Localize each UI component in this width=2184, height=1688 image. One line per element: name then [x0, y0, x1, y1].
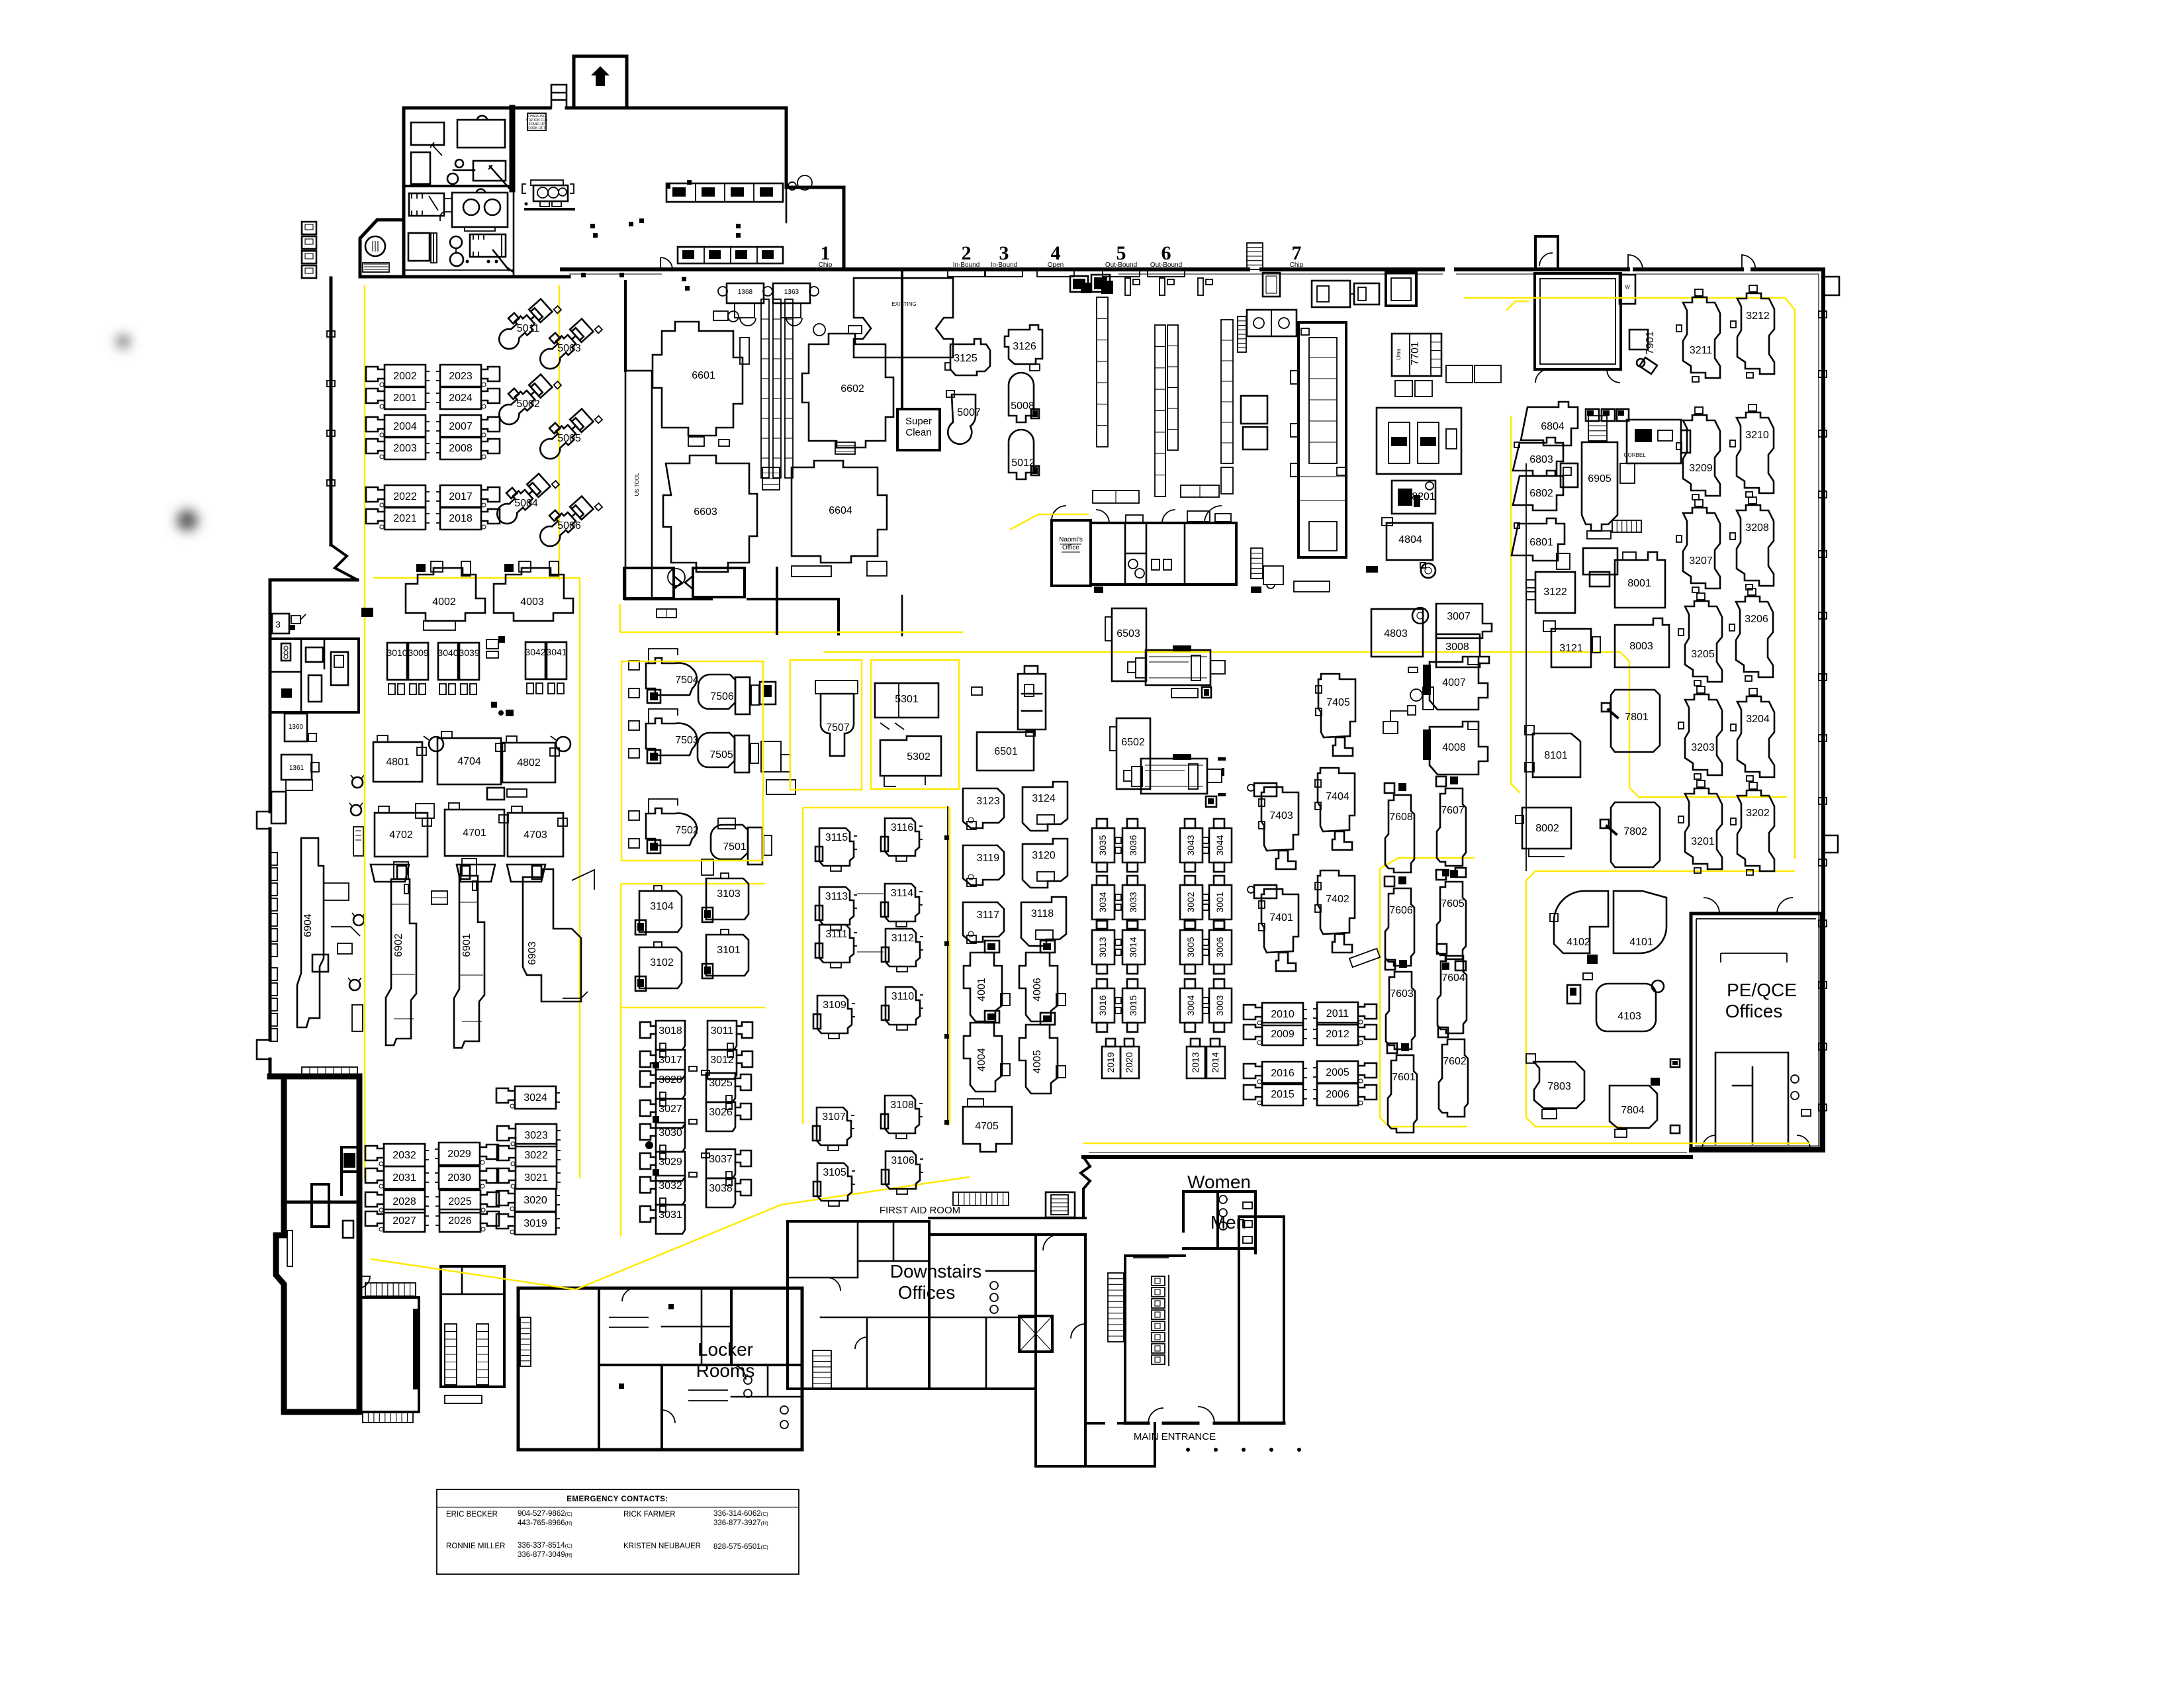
svg-text:W: W	[1625, 284, 1630, 290]
svg-text:Women: Women	[1187, 1172, 1251, 1192]
svg-text:5007: 5007	[957, 407, 981, 418]
svg-text:2016: 2016	[1271, 1068, 1295, 1079]
svg-text:3022: 3022	[524, 1150, 548, 1161]
svg-text:2006: 2006	[1326, 1089, 1349, 1100]
svg-text:3027: 3027	[659, 1103, 682, 1115]
svg-text:336-877-3927(H): 336-877-3927(H)	[713, 1519, 768, 1527]
svg-text:3012: 3012	[710, 1055, 734, 1066]
svg-text:3117: 3117	[977, 910, 1000, 921]
svg-text:7402: 7402	[1326, 894, 1349, 905]
svg-text:3204: 3204	[1746, 714, 1770, 725]
svg-text:KRISTEN NEUBAUER: KRISTEN NEUBAUER	[623, 1542, 701, 1550]
svg-text:2001: 2001	[393, 393, 417, 404]
svg-text:Out-Bound: Out-Bound	[1105, 261, 1137, 269]
svg-text:5011: 5011	[517, 323, 540, 334]
svg-text:3206: 3206	[1745, 614, 1768, 625]
svg-text:2027: 2027	[392, 1215, 416, 1227]
svg-text:3115: 3115	[825, 832, 848, 843]
svg-text:5012: 5012	[1011, 457, 1035, 469]
svg-text:3043: 3043	[1185, 835, 1196, 855]
svg-text:5301: 5301	[895, 694, 919, 705]
svg-text:3001: 3001	[1214, 892, 1225, 912]
svg-text:4704: 4704	[457, 756, 481, 767]
svg-text:5005: 5005	[557, 433, 581, 444]
svg-text:3205: 3205	[1691, 649, 1715, 660]
svg-text:7607: 7607	[1441, 805, 1465, 816]
svg-text:PE/QCE: PE/QCE	[1727, 980, 1797, 1000]
svg-text:4003: 4003	[520, 596, 544, 608]
svg-text:6803: 6803	[1529, 454, 1553, 465]
svg-text:3125: 3125	[954, 353, 978, 364]
svg-text:1368: 1368	[738, 289, 753, 296]
svg-text:3123: 3123	[976, 796, 1000, 807]
svg-text:3037: 3037	[709, 1154, 733, 1165]
svg-text:3035: 3035	[1097, 835, 1108, 855]
svg-text:3107: 3107	[822, 1111, 846, 1123]
svg-text:6502: 6502	[1121, 737, 1145, 748]
svg-text:3103: 3103	[717, 888, 741, 900]
svg-text:2013: 2013	[1190, 1052, 1201, 1072]
svg-text:7803: 7803	[1547, 1081, 1571, 1092]
svg-text:7401: 7401	[1269, 912, 1293, 923]
svg-text:3116: 3116	[891, 822, 914, 833]
svg-text:8003: 8003	[1629, 641, 1653, 652]
svg-text:6902: 6902	[393, 933, 404, 957]
svg-text:3030: 3030	[659, 1127, 682, 1139]
svg-text:2004: 2004	[393, 421, 417, 432]
svg-text:MAIN ENTRANCE: MAIN ENTRANCE	[1134, 1431, 1216, 1442]
svg-text:2011: 2011	[1326, 1008, 1349, 1019]
svg-text:6501: 6501	[994, 746, 1018, 757]
svg-text:2029: 2029	[447, 1149, 471, 1160]
svg-text:2031: 2031	[392, 1172, 416, 1184]
svg-text:2018: 2018	[449, 513, 473, 524]
svg-text:3002: 3002	[1185, 892, 1196, 912]
svg-text:5003: 5003	[557, 343, 581, 354]
svg-text:4803: 4803	[1384, 628, 1408, 639]
svg-text:2026: 2026	[448, 1215, 472, 1227]
svg-text:7608: 7608	[1389, 812, 1413, 823]
svg-text:4002: 4002	[432, 596, 456, 608]
svg-text:3101: 3101	[717, 945, 741, 956]
svg-text:3010: 3010	[387, 647, 407, 658]
svg-text:2023: 2023	[449, 371, 473, 382]
svg-text:3036: 3036	[1128, 835, 1138, 855]
svg-text:Office: Office	[1062, 544, 1079, 551]
svg-text:4701: 4701	[463, 827, 486, 839]
svg-text:2007: 2007	[449, 421, 473, 432]
svg-text:7505: 7505	[709, 749, 733, 761]
svg-text:6503: 6503	[1116, 628, 1140, 639]
svg-text:443-765-8966(H): 443-765-8966(H)	[518, 1519, 572, 1527]
svg-text:RICK FARMER: RICK FARMER	[623, 1511, 676, 1519]
svg-text:3008: 3008	[1445, 641, 1469, 653]
svg-text:2002: 2002	[393, 371, 417, 382]
svg-text:3211: 3211	[1690, 345, 1713, 356]
svg-text:8201: 8201	[1412, 491, 1435, 502]
svg-text:6602: 6602	[841, 383, 864, 395]
svg-text:6801: 6801	[1529, 537, 1553, 548]
svg-text:Chip: Chip	[819, 261, 833, 269]
svg-text:3019: 3019	[523, 1218, 547, 1229]
svg-text:5006: 5006	[557, 520, 581, 532]
svg-text:2021: 2021	[393, 513, 417, 524]
svg-text:3124: 3124	[1032, 793, 1056, 804]
svg-text:3033: 3033	[1128, 892, 1138, 912]
svg-text:2015: 2015	[1271, 1089, 1295, 1100]
svg-text:3121: 3121	[1559, 643, 1583, 654]
svg-text:6601: 6601	[692, 370, 715, 381]
svg-text:4004: 4004	[976, 1048, 987, 1072]
svg-text:5002: 5002	[516, 399, 540, 410]
svg-text:In-Bound: In-Bound	[991, 261, 1018, 269]
svg-text:7603: 7603	[1390, 988, 1414, 1000]
svg-text:3017: 3017	[659, 1055, 682, 1066]
svg-text:3034: 3034	[1097, 892, 1108, 912]
svg-text:Offices: Offices	[1725, 1001, 1783, 1021]
svg-text:Naomi's: Naomi's	[1059, 536, 1083, 543]
svg-text:8002: 8002	[1535, 823, 1559, 834]
svg-text:7605: 7605	[1441, 898, 1465, 910]
svg-text:4101: 4101	[1629, 937, 1653, 948]
svg-text:Downstairs: Downstairs	[890, 1261, 981, 1282]
svg-text:5302: 5302	[907, 751, 931, 763]
svg-text:7604: 7604	[1441, 972, 1465, 984]
svg-text:US TOOL: US TOOL	[634, 473, 640, 496]
svg-text:7601: 7601	[1392, 1072, 1416, 1083]
svg-text:7901: 7901	[1645, 331, 1656, 355]
svg-text:4702: 4702	[389, 829, 413, 841]
svg-text:3009: 3009	[408, 647, 428, 658]
svg-text:6603: 6603	[694, 506, 717, 518]
svg-text:Chip: Chip	[1290, 261, 1304, 269]
svg-text:3119: 3119	[977, 853, 1000, 864]
svg-text:4001: 4001	[976, 978, 987, 1002]
svg-text:2012: 2012	[1326, 1029, 1349, 1040]
svg-text:3023: 3023	[524, 1130, 548, 1141]
svg-text:3028: 3028	[659, 1074, 682, 1086]
svg-text:ERIC BECKER: ERIC BECKER	[446, 1511, 498, 1519]
svg-text:3208: 3208	[1745, 522, 1769, 534]
svg-text:3120: 3120	[1032, 850, 1056, 861]
svg-text:8101: 8101	[1544, 750, 1568, 761]
svg-text:3112: 3112	[891, 933, 915, 944]
svg-text:3042: 3042	[525, 647, 545, 657]
svg-text:336-337-8514(C): 336-337-8514(C)	[518, 1542, 572, 1550]
svg-text:3201: 3201	[1691, 836, 1715, 847]
svg-text:3038: 3038	[709, 1183, 733, 1194]
svg-text:7405: 7405	[1326, 697, 1350, 708]
svg-text:3020: 3020	[523, 1195, 547, 1206]
svg-text:FORK LIFT: FORK LIFT	[528, 126, 545, 130]
svg-text:6804: 6804	[1541, 421, 1565, 432]
svg-text:5004: 5004	[514, 498, 538, 509]
svg-text:7507: 7507	[826, 722, 850, 733]
svg-text:7701: 7701	[1410, 342, 1421, 365]
svg-text:Out-Bound: Out-Bound	[1150, 261, 1182, 269]
svg-text:3: 3	[275, 619, 281, 630]
svg-text:3005: 3005	[1185, 937, 1196, 957]
svg-text:4007: 4007	[1442, 677, 1466, 688]
svg-text:4804: 4804	[1398, 534, 1422, 545]
svg-text:904-527-9862(C): 904-527-9862(C)	[518, 1510, 572, 1518]
svg-text:3025: 3025	[709, 1078, 733, 1089]
svg-text:7503: 7503	[675, 735, 699, 746]
svg-text:3108: 3108	[890, 1100, 914, 1111]
svg-text:2017: 2017	[449, 491, 473, 502]
svg-text:3039: 3039	[459, 647, 479, 658]
svg-text:3111: 3111	[825, 929, 847, 940]
svg-text:1361: 1361	[289, 765, 304, 772]
svg-text:3003: 3003	[1214, 995, 1225, 1015]
svg-text:4006: 4006	[1032, 978, 1043, 1002]
svg-text:7802: 7802	[1623, 826, 1647, 837]
svg-text:4103: 4103	[1617, 1011, 1641, 1022]
svg-text:3011: 3011	[711, 1025, 734, 1037]
svg-text:3016: 3016	[1097, 995, 1108, 1015]
svg-text:336-314-6062(C): 336-314-6062(C)	[713, 1510, 768, 1518]
svg-text:2030: 2030	[447, 1172, 471, 1184]
svg-text:3104: 3104	[650, 901, 674, 912]
svg-text:FIRST AID ROOM: FIRST AID ROOM	[880, 1205, 960, 1216]
svg-text:7403: 7403	[1269, 810, 1293, 821]
svg-text:3207: 3207	[1689, 555, 1713, 567]
svg-text:EMERGENCY CONTACTS:: EMERGENCY CONTACTS:	[567, 1495, 668, 1503]
svg-text:RONNIE MILLER: RONNIE MILLER	[446, 1542, 505, 1550]
svg-text:336-877-3049(H): 336-877-3049(H)	[518, 1551, 572, 1559]
svg-text:Locker: Locker	[698, 1339, 753, 1360]
svg-text:3024: 3024	[523, 1092, 547, 1103]
svg-text:4102: 4102	[1567, 937, 1590, 948]
svg-text:3114: 3114	[891, 888, 914, 899]
svg-text:2028: 2028	[392, 1196, 416, 1207]
svg-text:3006: 3006	[1214, 937, 1225, 957]
svg-text:4005: 4005	[1032, 1050, 1043, 1074]
svg-text:4008: 4008	[1442, 742, 1466, 753]
svg-text:3018: 3018	[659, 1025, 682, 1037]
svg-text:2008: 2008	[449, 443, 473, 454]
svg-text:Open: Open	[1048, 261, 1064, 269]
svg-text:Clean: Clean	[905, 427, 931, 438]
svg-text:3102: 3102	[650, 957, 674, 968]
svg-text:5008: 5008	[1011, 400, 1034, 412]
svg-text:3118: 3118	[1031, 908, 1054, 919]
svg-text:6901: 6901	[461, 933, 473, 957]
svg-text:GORBEL: GORBEL	[1623, 452, 1646, 458]
svg-text:2010: 2010	[1271, 1009, 1295, 1020]
svg-text:In-Bound: In-Bound	[953, 261, 980, 269]
svg-text:3113: 3113	[825, 891, 848, 902]
svg-text:3105: 3105	[823, 1167, 846, 1178]
svg-text:2020: 2020	[1124, 1052, 1134, 1072]
svg-text:7501: 7501	[723, 841, 747, 853]
svg-text:2032: 2032	[392, 1150, 416, 1161]
svg-text:3106: 3106	[891, 1155, 915, 1166]
svg-text:3021: 3021	[524, 1172, 548, 1184]
svg-text:6905: 6905	[1588, 473, 1612, 485]
svg-text:7602: 7602	[1443, 1056, 1467, 1067]
svg-text:Super: Super	[905, 416, 932, 427]
svg-text:3040: 3040	[437, 647, 458, 658]
svg-text:3044: 3044	[1214, 835, 1225, 855]
svg-text:3210: 3210	[1745, 430, 1769, 441]
svg-text:3122: 3122	[1543, 586, 1567, 598]
svg-text:3029: 3029	[659, 1156, 682, 1168]
svg-text:Rooms: Rooms	[696, 1360, 755, 1381]
svg-text:4801: 4801	[386, 757, 410, 768]
svg-text:Offices: Offices	[898, 1282, 956, 1303]
svg-text:828-575-6501(C): 828-575-6501(C)	[713, 1543, 768, 1551]
svg-text:7404: 7404	[1326, 791, 1349, 802]
svg-text:7804: 7804	[1621, 1105, 1645, 1116]
svg-text:3004: 3004	[1185, 995, 1196, 1015]
svg-text:3126: 3126	[1013, 341, 1036, 352]
svg-text:2019: 2019	[1105, 1052, 1116, 1072]
svg-text:2009: 2009	[1271, 1029, 1295, 1040]
svg-text:4705: 4705	[975, 1121, 999, 1132]
svg-text:1360: 1360	[289, 724, 304, 731]
svg-text:6604: 6604	[829, 505, 852, 516]
svg-text:2025: 2025	[448, 1196, 472, 1207]
svg-text:3031: 3031	[659, 1209, 682, 1221]
svg-text:EXISTING: EXISTING	[891, 301, 916, 307]
svg-text:2003: 2003	[393, 443, 417, 454]
svg-text:4703: 4703	[523, 829, 547, 841]
svg-text:3014: 3014	[1128, 937, 1138, 957]
svg-text:3032: 3032	[659, 1180, 682, 1192]
svg-text:6802: 6802	[1529, 488, 1553, 499]
svg-text:4802: 4802	[517, 757, 541, 769]
svg-text:7506: 7506	[710, 691, 734, 702]
svg-text:7606: 7606	[1389, 905, 1413, 916]
svg-text:3212: 3212	[1746, 310, 1770, 322]
svg-text:3041: 3041	[546, 647, 567, 657]
svg-text:3013: 3013	[1097, 937, 1108, 957]
svg-text:3007: 3007	[1447, 611, 1471, 622]
svg-text:8001: 8001	[1627, 578, 1651, 589]
svg-text:3209: 3209	[1689, 463, 1713, 474]
svg-text:3203: 3203	[1691, 742, 1715, 753]
svg-text:2005: 2005	[1326, 1067, 1349, 1078]
svg-text:3026: 3026	[709, 1107, 733, 1118]
svg-text:Ultra: Ultra	[1396, 348, 1402, 359]
svg-text:3110: 3110	[891, 991, 915, 1002]
svg-text:6903: 6903	[527, 941, 538, 965]
svg-text:6904: 6904	[302, 914, 314, 937]
svg-text:3202: 3202	[1746, 808, 1770, 819]
svg-text:7504: 7504	[675, 675, 699, 686]
svg-text:2022: 2022	[393, 491, 417, 502]
svg-text:1363: 1363	[784, 289, 799, 296]
svg-text:7502: 7502	[675, 825, 699, 836]
svg-text:2024: 2024	[449, 393, 473, 404]
svg-text:2014: 2014	[1210, 1052, 1220, 1072]
svg-text:7801: 7801	[1625, 712, 1649, 723]
svg-text:3015: 3015	[1128, 995, 1138, 1015]
svg-text:3109: 3109	[823, 1000, 846, 1011]
svg-text:Men: Men	[1210, 1212, 1246, 1233]
